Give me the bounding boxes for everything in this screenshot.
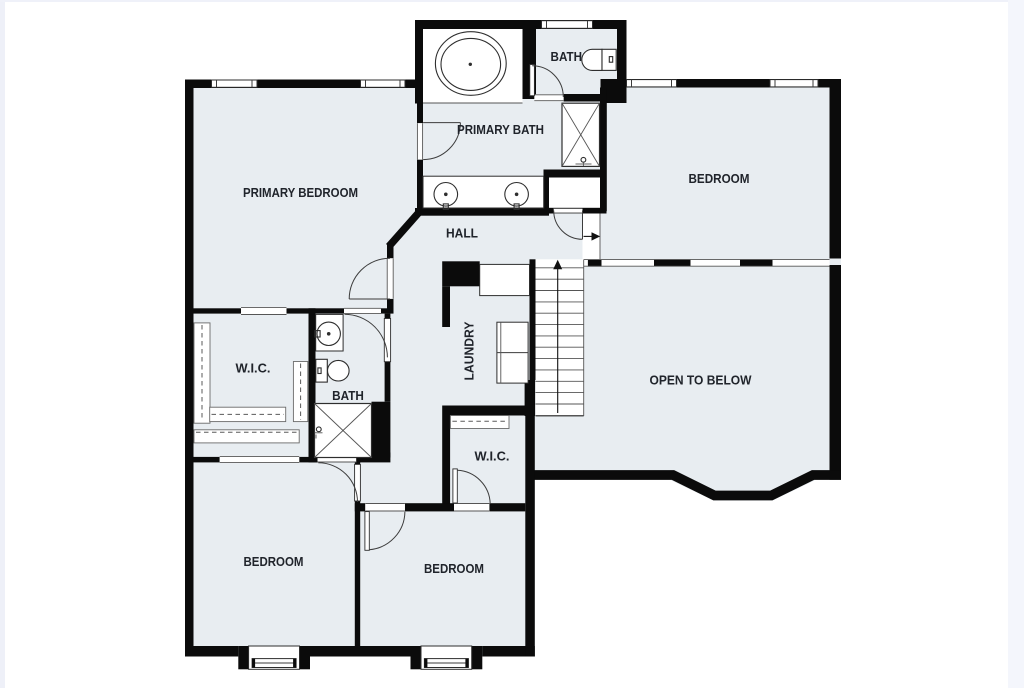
svg-text:HALL: HALL: [446, 226, 478, 240]
svg-text:W.I.C.: W.I.C.: [236, 362, 271, 376]
svg-text:LAUNDRY: LAUNDRY: [463, 321, 477, 381]
svg-text:BEDROOM: BEDROOM: [689, 172, 750, 186]
svg-text:W.I.C.: W.I.C.: [475, 450, 510, 464]
svg-text:OPEN TO BELOW: OPEN TO BELOW: [650, 374, 752, 388]
svg-text:PRIMARY BATH: PRIMARY BATH: [457, 123, 544, 137]
svg-text:BATH: BATH: [551, 50, 583, 64]
svg-text:PRIMARY BEDROOM: PRIMARY BEDROOM: [243, 186, 358, 200]
svg-text:BEDROOM: BEDROOM: [424, 562, 484, 576]
svg-text:BATH: BATH: [332, 389, 364, 403]
svg-text:BEDROOM: BEDROOM: [244, 555, 304, 569]
